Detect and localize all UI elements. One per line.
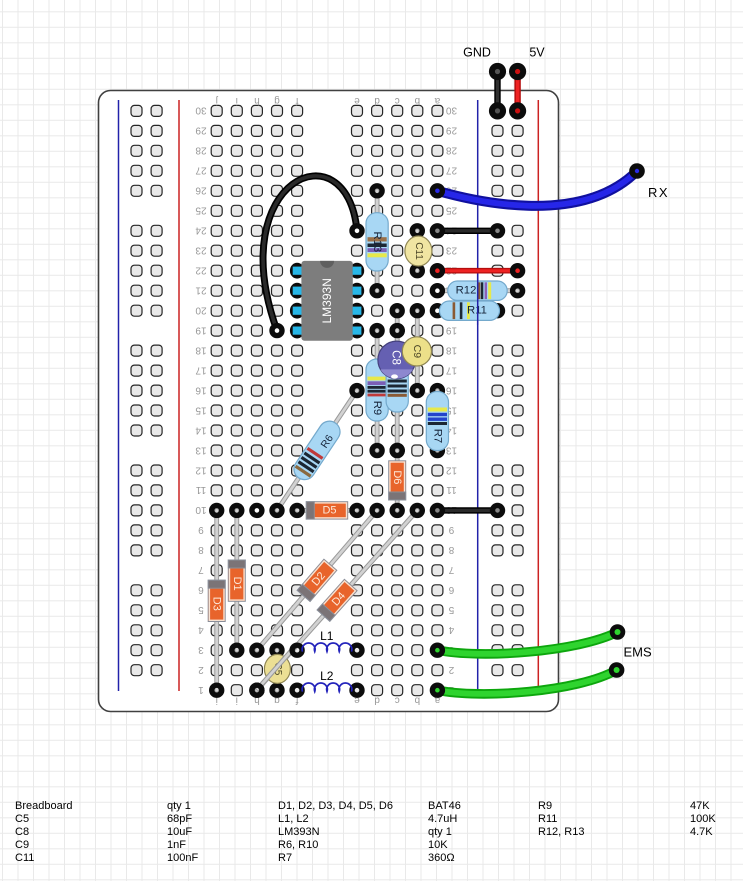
svg-text:c: c xyxy=(395,694,400,705)
svg-text:19: 19 xyxy=(446,324,458,335)
svg-text:c: c xyxy=(395,95,400,106)
svg-text:a: a xyxy=(434,95,440,106)
svg-text:28: 28 xyxy=(195,145,207,156)
svg-text:14: 14 xyxy=(195,424,207,435)
svg-text:5: 5 xyxy=(198,604,204,615)
svg-text:21: 21 xyxy=(195,285,207,296)
svg-text:7: 7 xyxy=(448,564,454,575)
svg-text:27: 27 xyxy=(195,165,207,176)
svg-text:C8: C8 xyxy=(390,350,402,365)
svg-text:23: 23 xyxy=(446,245,458,256)
svg-text:g: g xyxy=(274,95,280,106)
svg-text:4: 4 xyxy=(448,624,454,635)
svg-text:L1: L1 xyxy=(320,629,334,643)
svg-text:2: 2 xyxy=(448,664,454,675)
svg-text:5V: 5V xyxy=(529,46,545,60)
svg-text:C11: C11 xyxy=(413,242,424,260)
svg-text:1: 1 xyxy=(198,684,204,695)
svg-text:9: 9 xyxy=(448,524,454,535)
svg-text:17: 17 xyxy=(195,364,207,375)
svg-text:D1: D1 xyxy=(231,577,243,591)
svg-text:11: 11 xyxy=(195,484,206,495)
svg-text:f: f xyxy=(295,95,298,106)
svg-text:19: 19 xyxy=(195,324,207,335)
svg-text:16: 16 xyxy=(195,384,207,395)
svg-text:D6: D6 xyxy=(391,470,403,484)
svg-text:GND: GND xyxy=(463,46,491,60)
svg-text:10: 10 xyxy=(195,504,207,515)
svg-text:6: 6 xyxy=(448,584,454,595)
svg-text:5: 5 xyxy=(448,604,454,615)
svg-text:R9: R9 xyxy=(371,401,383,415)
svg-text:R13: R13 xyxy=(371,231,383,252)
svg-text:b: b xyxy=(414,95,420,106)
svg-text:17: 17 xyxy=(446,364,458,375)
svg-text:7: 7 xyxy=(198,564,204,575)
svg-text:RX: RX xyxy=(648,185,669,200)
svg-text:4: 4 xyxy=(198,624,204,635)
svg-text:29: 29 xyxy=(195,125,207,136)
svg-text:C9: C9 xyxy=(411,345,423,359)
svg-text:30: 30 xyxy=(195,105,207,116)
svg-text:D3: D3 xyxy=(211,597,223,611)
svg-text:30: 30 xyxy=(446,105,458,116)
svg-text:h: h xyxy=(254,95,260,106)
svg-text:b: b xyxy=(414,694,420,705)
svg-text:29: 29 xyxy=(446,125,458,136)
svg-text:12: 12 xyxy=(195,464,207,475)
svg-text:13: 13 xyxy=(195,444,207,455)
svg-text:d: d xyxy=(374,95,380,106)
svg-text:D5: D5 xyxy=(322,504,336,516)
svg-text:11: 11 xyxy=(446,484,457,495)
svg-text:22: 22 xyxy=(195,265,207,276)
svg-text:26: 26 xyxy=(195,185,207,196)
svg-text:18: 18 xyxy=(195,344,207,355)
svg-text:e: e xyxy=(354,95,360,106)
svg-text:8: 8 xyxy=(198,544,204,555)
svg-text:25: 25 xyxy=(446,205,458,216)
svg-text:LM393N: LM393N xyxy=(320,278,334,323)
svg-text:15: 15 xyxy=(195,404,207,415)
svg-text:18: 18 xyxy=(446,344,458,355)
svg-text:d: d xyxy=(374,694,380,705)
svg-text:R12: R12 xyxy=(456,285,477,297)
svg-text:25: 25 xyxy=(195,205,207,216)
svg-text:L2: L2 xyxy=(320,669,334,683)
svg-text:27: 27 xyxy=(446,165,458,176)
svg-text:EMS: EMS xyxy=(624,645,653,660)
svg-text:23: 23 xyxy=(195,245,207,256)
svg-text:j: j xyxy=(216,95,219,106)
svg-text:28: 28 xyxy=(446,145,458,156)
svg-text:2: 2 xyxy=(198,664,204,675)
svg-text:3: 3 xyxy=(198,644,204,655)
svg-text:20: 20 xyxy=(195,305,207,316)
svg-text:24: 24 xyxy=(195,225,207,236)
svg-text:9: 9 xyxy=(198,524,204,535)
svg-text:i: i xyxy=(236,694,238,705)
svg-text:8: 8 xyxy=(448,544,454,555)
svg-text:R7: R7 xyxy=(431,429,443,443)
svg-text:6: 6 xyxy=(198,584,204,595)
svg-text:12: 12 xyxy=(446,464,458,475)
svg-text:16: 16 xyxy=(446,384,458,395)
svg-text:i: i xyxy=(236,95,238,106)
